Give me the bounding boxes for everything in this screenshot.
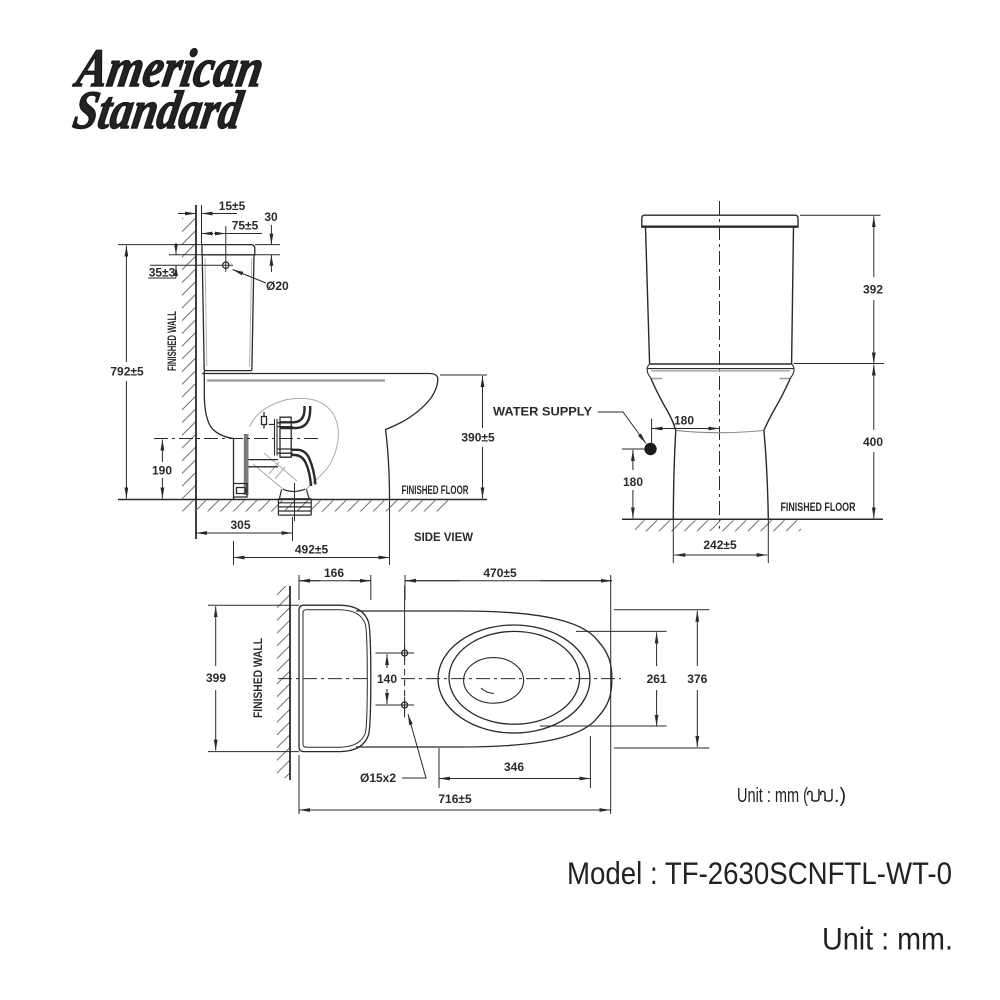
svg-text:400: 400 xyxy=(863,435,883,449)
svg-text:Model : TF-2630SCNFTL-WT-0: Model : TF-2630SCNFTL-WT-0 xyxy=(567,855,952,891)
svg-text:FINISHED FLOOR: FINISHED FLOOR xyxy=(402,483,469,497)
svg-text:WATER SUPPLY: WATER SUPPLY xyxy=(493,405,592,419)
svg-text:346: 346 xyxy=(504,760,524,774)
svg-text:75±5: 75±5 xyxy=(232,219,259,233)
svg-text:Standard: Standard xyxy=(69,80,247,140)
svg-text:Unit : mm.: Unit : mm. xyxy=(822,921,953,957)
svg-text:FINISHED WALL: FINISHED WALL xyxy=(165,311,179,371)
svg-text:399: 399 xyxy=(206,671,226,685)
svg-text:35±3: 35±3 xyxy=(149,266,176,280)
svg-text:Unit : mm (: Unit : mm ( xyxy=(737,785,808,807)
svg-text:140: 140 xyxy=(377,672,397,686)
svg-text:376: 376 xyxy=(687,672,707,686)
svg-text:305: 305 xyxy=(230,518,250,532)
svg-text:166: 166 xyxy=(324,566,344,580)
svg-text:Ø20: Ø20 xyxy=(266,279,289,293)
svg-text:SIDE VIEW: SIDE VIEW xyxy=(414,530,474,544)
svg-text:392: 392 xyxy=(863,283,883,297)
svg-text:180: 180 xyxy=(623,475,643,489)
svg-text:180: 180 xyxy=(674,414,694,428)
svg-text:390±5: 390±5 xyxy=(461,431,495,445)
svg-text:716±5: 716±5 xyxy=(438,792,472,806)
svg-text:FINISHED WALL: FINISHED WALL xyxy=(251,638,265,718)
svg-text:792±5: 792±5 xyxy=(110,365,144,379)
svg-text:FINISHED FLOOR: FINISHED FLOOR xyxy=(781,500,856,514)
svg-text:Ø15x2: Ø15x2 xyxy=(360,771,396,785)
svg-text:261: 261 xyxy=(647,672,667,686)
svg-text:470±5: 470±5 xyxy=(483,566,517,580)
svg-text:492±5: 492±5 xyxy=(295,543,329,557)
svg-text:190: 190 xyxy=(152,464,172,478)
svg-text:15±5: 15±5 xyxy=(219,199,246,213)
svg-text:30: 30 xyxy=(264,210,278,224)
svg-text:.): .) xyxy=(834,785,846,807)
svg-text:242±5: 242±5 xyxy=(703,538,737,552)
